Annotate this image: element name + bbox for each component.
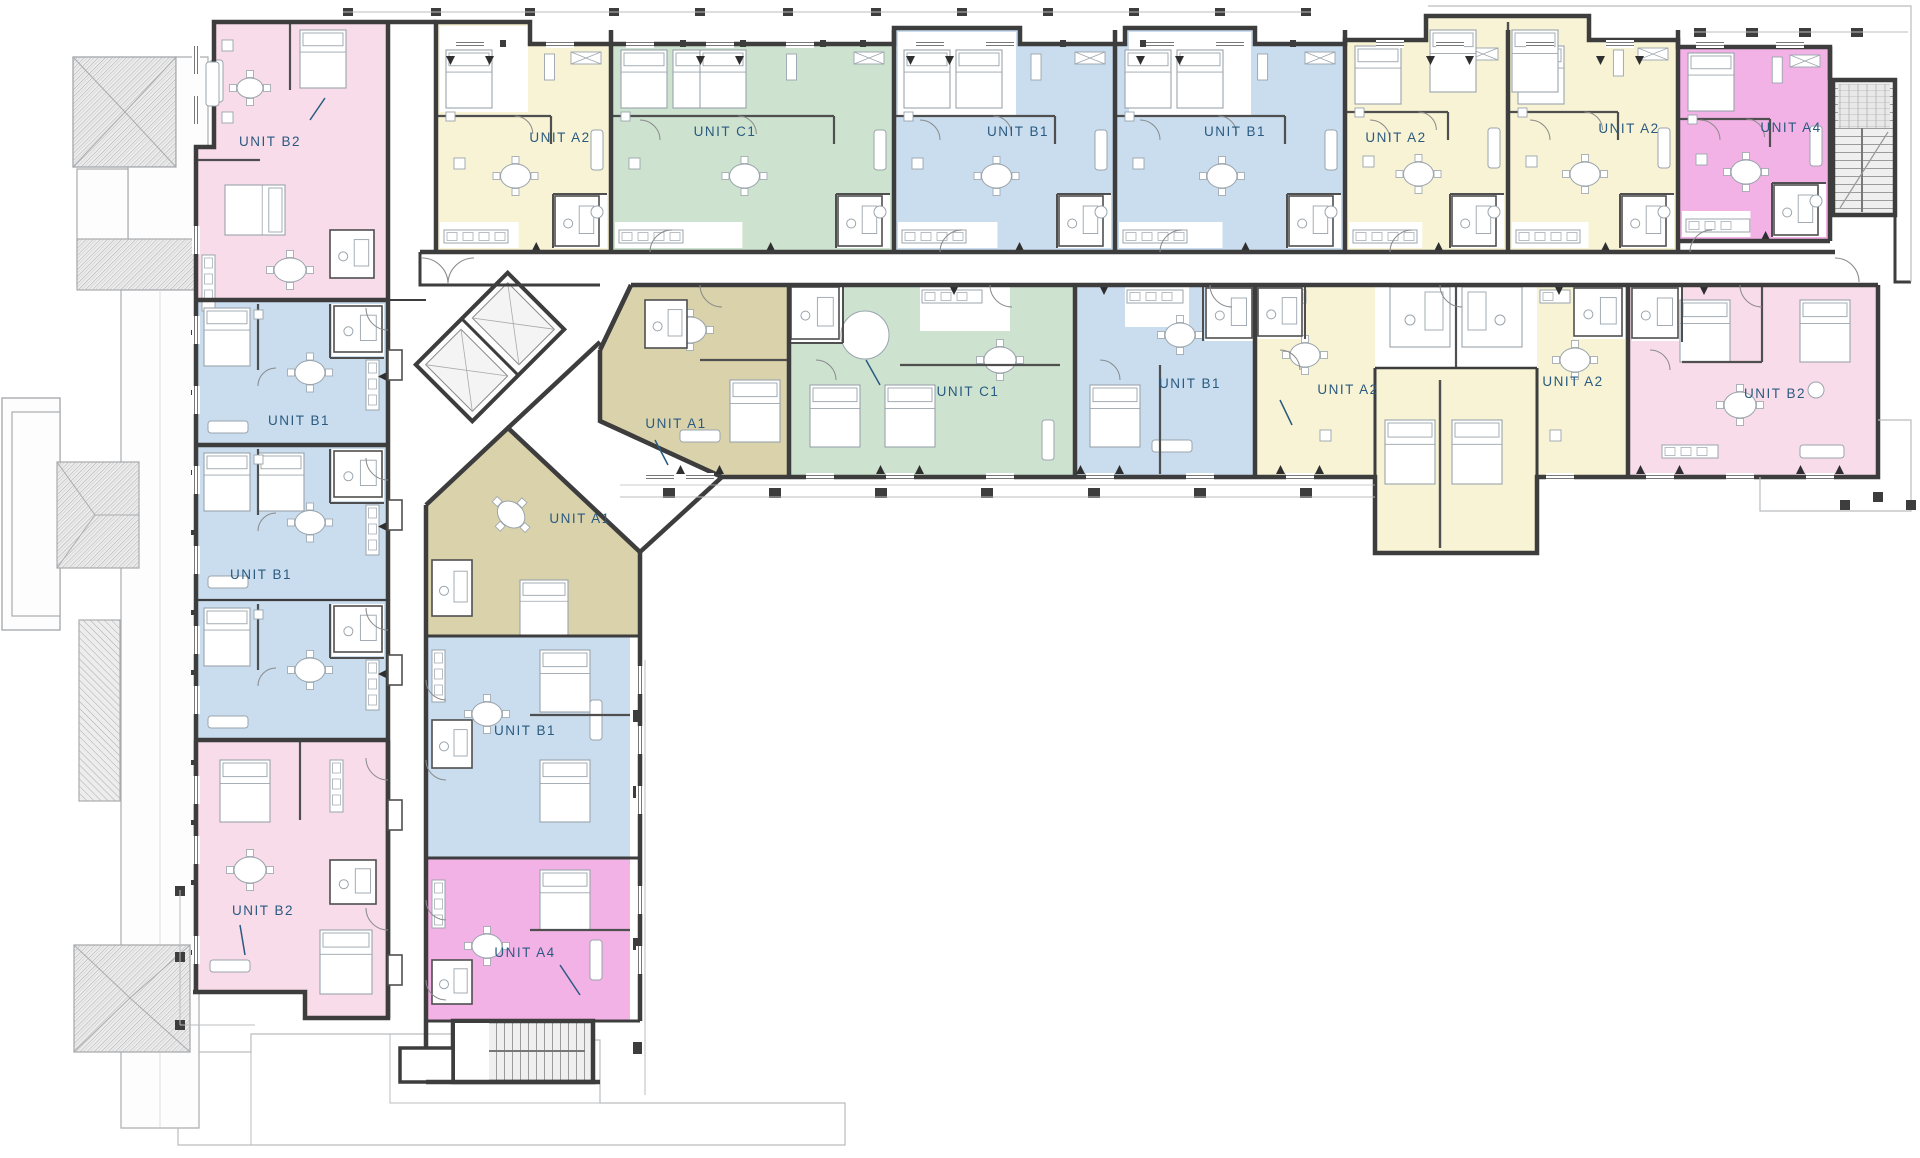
svg-text:UNIT C1: UNIT C1 — [937, 384, 1000, 399]
svg-text:UNIT A1: UNIT A1 — [549, 511, 610, 526]
svg-text:UNIT B1: UNIT B1 — [987, 124, 1049, 139]
svg-text:UNIT B2: UNIT B2 — [232, 903, 294, 918]
svg-text:UNIT B2: UNIT B2 — [239, 134, 301, 149]
svg-text:UNIT A4: UNIT A4 — [1760, 120, 1821, 135]
svg-text:UNIT A4: UNIT A4 — [494, 945, 555, 960]
svg-text:UNIT B1: UNIT B1 — [268, 413, 330, 428]
svg-text:UNIT A2: UNIT A2 — [529, 130, 590, 145]
svg-text:UNIT A2: UNIT A2 — [1598, 121, 1659, 136]
svg-text:UNIT A2: UNIT A2 — [1317, 382, 1378, 397]
svg-text:UNIT A2: UNIT A2 — [1365, 130, 1426, 145]
svg-text:UNIT B2: UNIT B2 — [1744, 386, 1806, 401]
svg-text:UNIT B1: UNIT B1 — [494, 723, 556, 738]
svg-text:UNIT B1: UNIT B1 — [1204, 124, 1266, 139]
svg-text:UNIT A2: UNIT A2 — [1542, 374, 1603, 389]
svg-text:UNIT B1: UNIT B1 — [230, 567, 292, 582]
svg-text:UNIT B1: UNIT B1 — [1159, 376, 1221, 391]
svg-text:UNIT C1: UNIT C1 — [694, 124, 757, 139]
svg-text:UNIT A1: UNIT A1 — [645, 416, 706, 431]
